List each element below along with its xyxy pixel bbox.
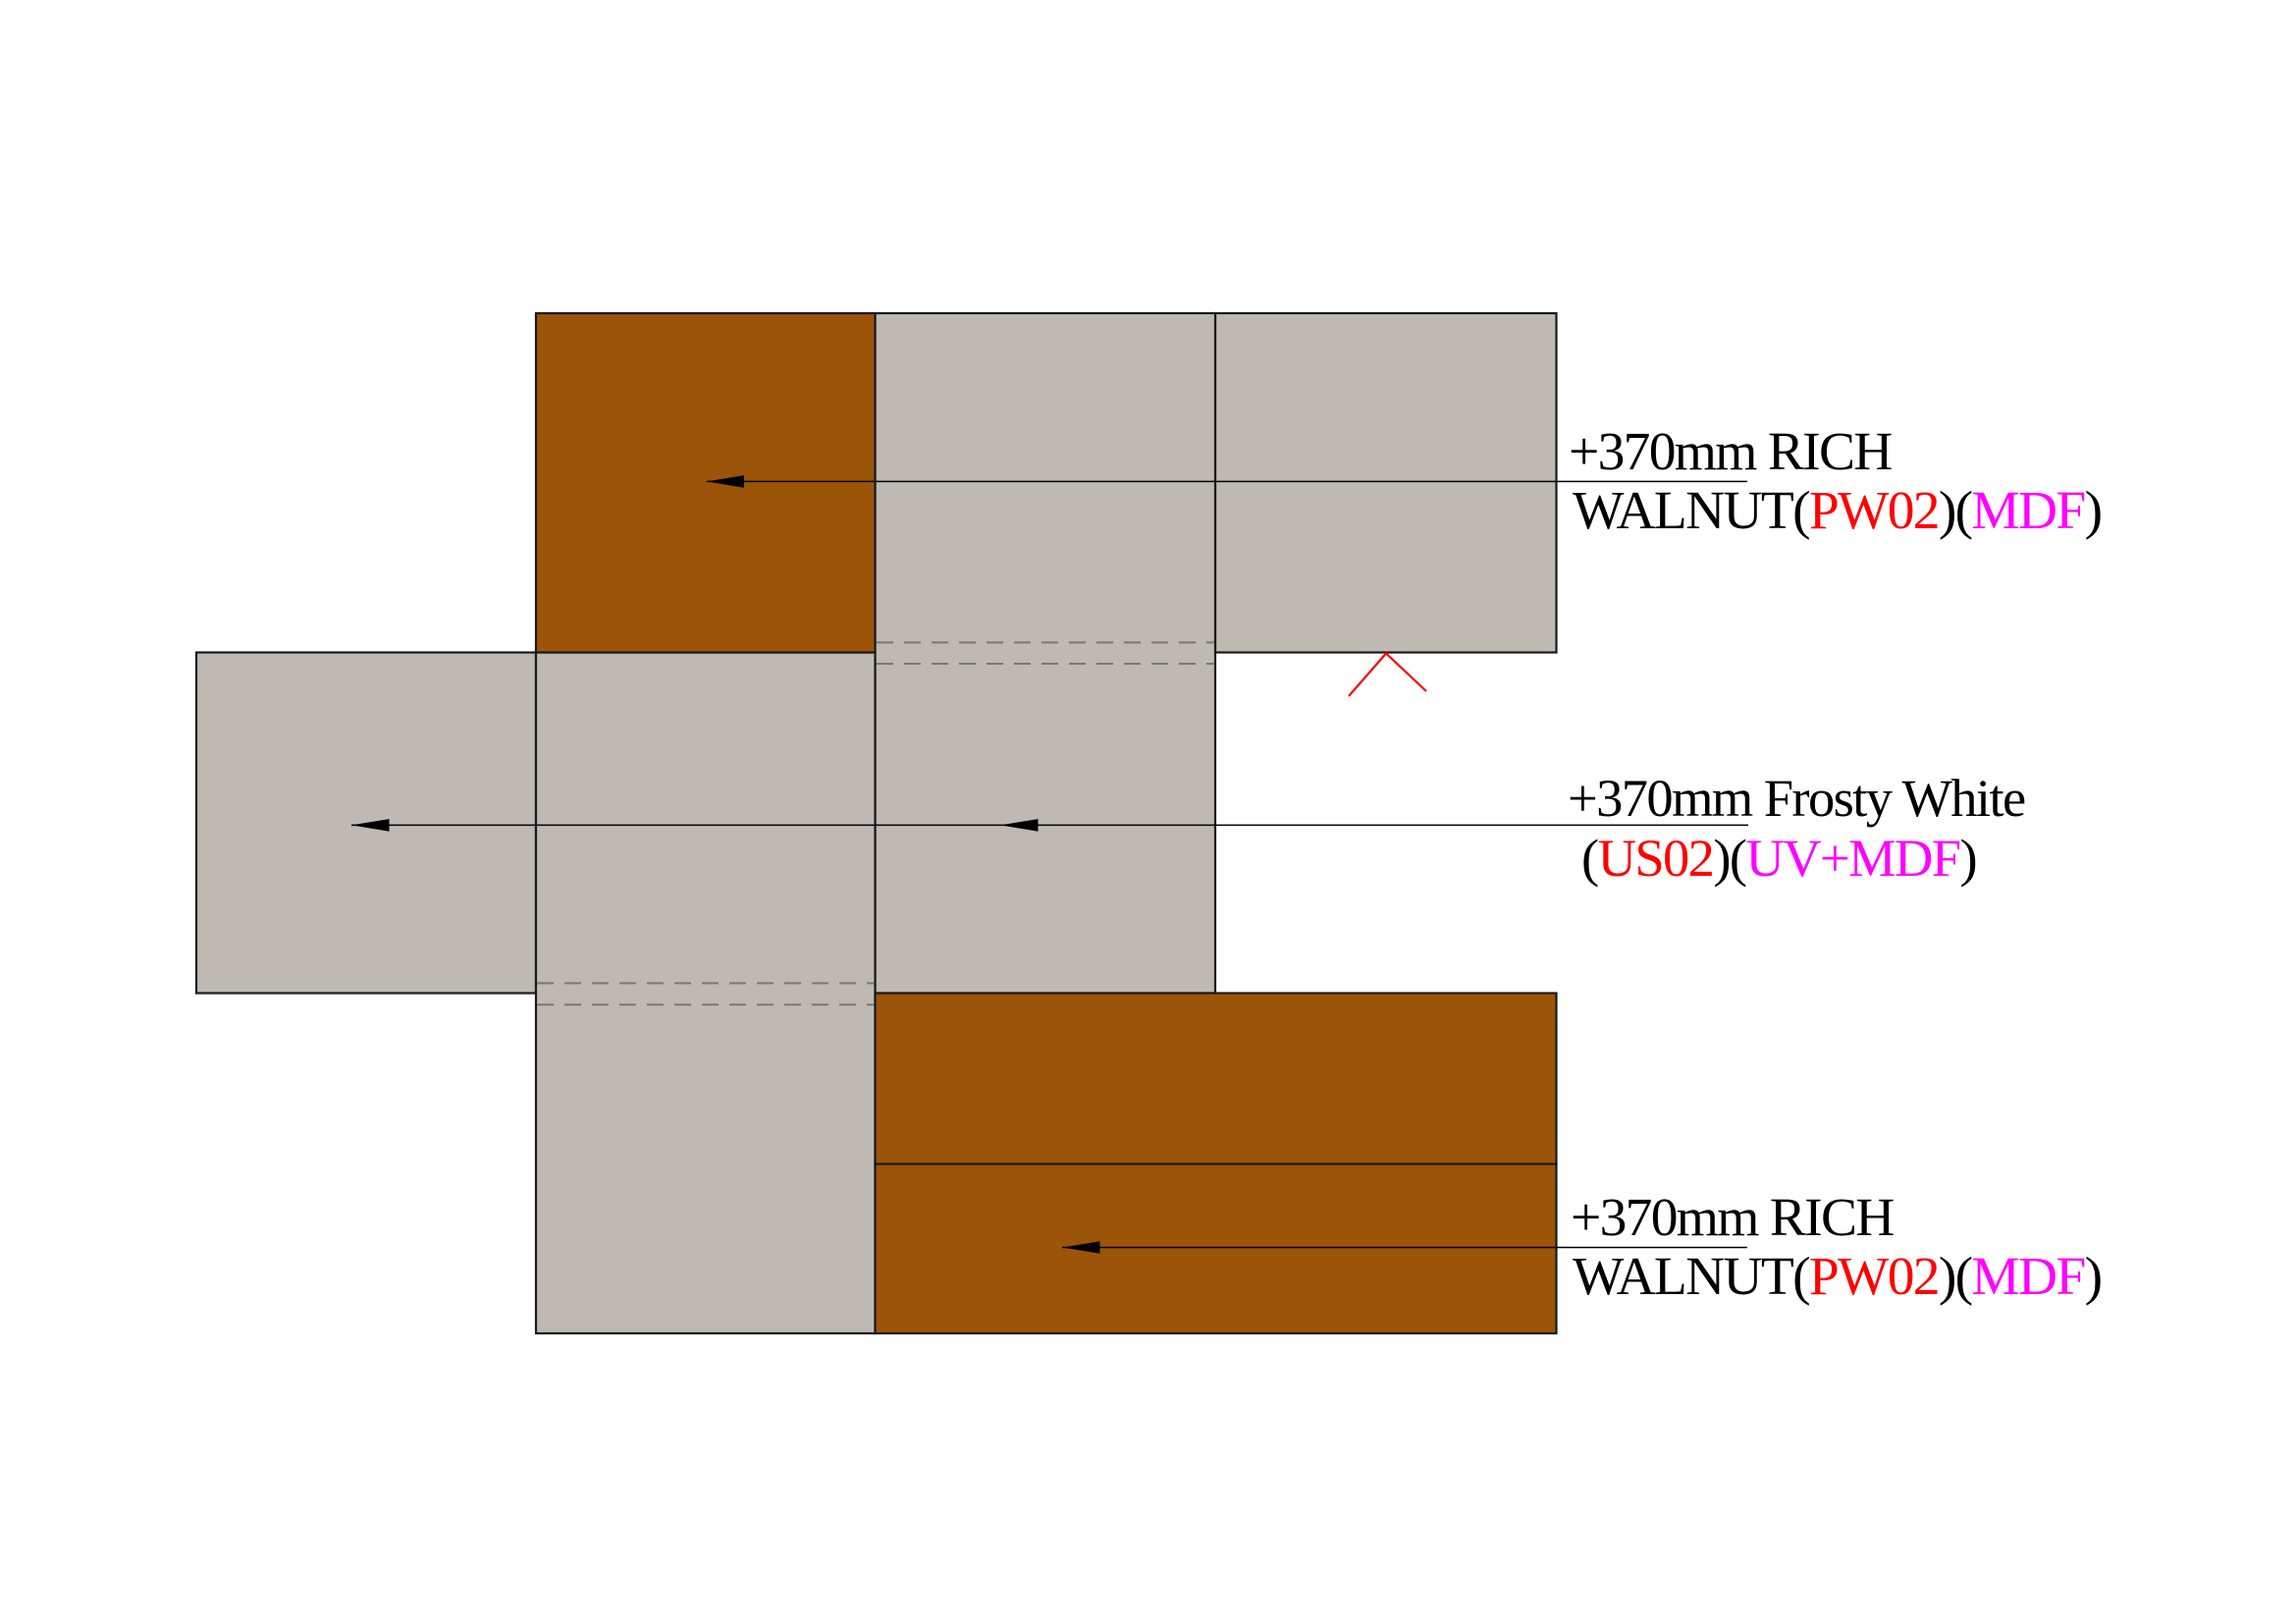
svg-text:(US02)(UV+MDF): (US02)(UV+MDF) xyxy=(1581,828,1976,888)
svg-text:WALNUT(PW02)(MDF): WALNUT(PW02)(MDF) xyxy=(1573,481,2102,541)
svg-text:WALNUT(PW02)(MDF): WALNUT(PW02)(MDF) xyxy=(1573,1247,2102,1307)
svg-text:+370mm RICH: +370mm RICH xyxy=(1571,1188,1894,1248)
svg-text:+370mm RICH: +370mm RICH xyxy=(1569,422,1892,482)
svg-text:+370mm Frosty White: +370mm Frosty White xyxy=(1568,768,2025,828)
